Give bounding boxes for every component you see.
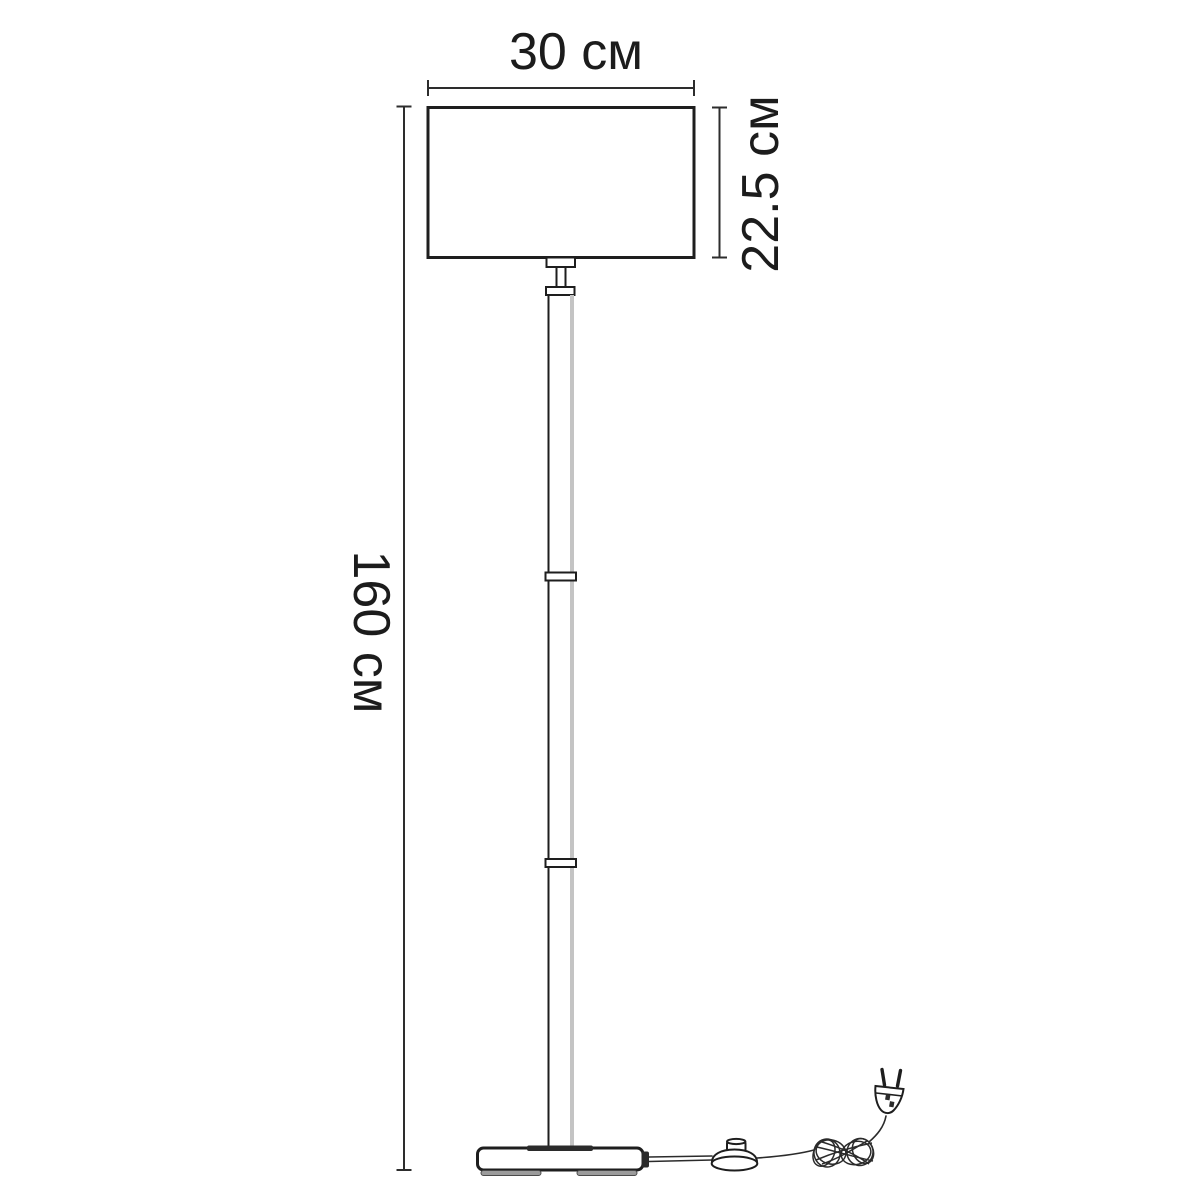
cord-base-to-switch-a [649, 1156, 712, 1157]
lampshade [428, 108, 694, 258]
base-pole-mount [527, 1146, 593, 1152]
base-foot-left [481, 1171, 541, 1176]
plug-prong-right [898, 1071, 901, 1087]
switch-base [712, 1157, 758, 1171]
shade-height-label: 22.5 см [732, 95, 790, 272]
base-plate [478, 1148, 644, 1170]
plug-vent-upper [885, 1094, 890, 1100]
diagram-canvas: 30 см 22.5 см 160 см [0, 0, 1200, 1200]
plug-prong-left [882, 1070, 885, 1086]
lampshade-drum [428, 108, 694, 258]
lamp-socket [546, 258, 575, 296]
cord-coil-to-plug [869, 1116, 886, 1142]
switch-button-top [727, 1139, 745, 1144]
cord-base-to-switch-b [649, 1160, 712, 1162]
pole-joint-lower [546, 859, 577, 867]
base-foot-right [577, 1171, 637, 1176]
foot-switch [712, 1139, 758, 1171]
shade-width-label: 30 см [509, 23, 643, 81]
plug-vent-lower [889, 1101, 894, 1107]
power-cord [642, 1116, 887, 1170]
socket-neck [557, 267, 566, 287]
cord-outlet-nub [642, 1152, 650, 1168]
floor-lamp-dimension-diagram: 30 см 22.5 см 160 см [0, 0, 1200, 1200]
pole-joint-upper [546, 573, 577, 581]
socket-finial [547, 258, 576, 268]
dimension-total-height: 160 см [342, 107, 412, 1171]
coil-cross-1 [816, 1143, 872, 1160]
lamp-pole [546, 295, 577, 1148]
cord-switch-to-coil [757, 1150, 814, 1158]
total-height-label: 160 см [342, 551, 400, 714]
power-plug [875, 1070, 903, 1114]
dimension-shade-height: 22.5 см [712, 95, 790, 272]
socket-collar [546, 287, 575, 295]
dimension-shade-width: 30 см [428, 23, 694, 96]
lamp-base [478, 1146, 644, 1176]
cord-coil [809, 1135, 878, 1170]
